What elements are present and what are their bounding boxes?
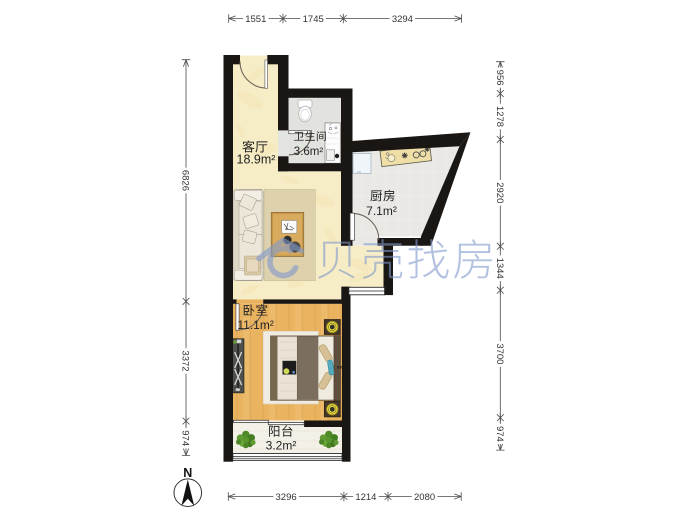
svg-text:2080: 2080 <box>414 492 435 503</box>
svg-text:11.1m²: 11.1m² <box>237 318 273 332</box>
svg-text:3700: 3700 <box>494 343 505 364</box>
svg-text:1344: 1344 <box>494 258 505 279</box>
svg-text:1278: 1278 <box>494 106 505 127</box>
svg-text:7.1m²: 7.1m² <box>366 204 397 218</box>
svg-text:1551: 1551 <box>245 14 266 25</box>
svg-text:1745: 1745 <box>303 14 324 25</box>
svg-text:3.6m²: 3.6m² <box>294 146 324 158</box>
svg-text:6826: 6826 <box>180 170 191 191</box>
svg-text:974: 974 <box>494 426 505 442</box>
svg-text:974: 974 <box>180 430 191 446</box>
svg-text:3294: 3294 <box>392 14 413 25</box>
svg-text:3372: 3372 <box>180 350 191 371</box>
svg-text:956: 956 <box>494 70 505 86</box>
svg-text:3296: 3296 <box>276 492 297 503</box>
svg-text:3.2m²: 3.2m² <box>266 438 297 452</box>
svg-text:1214: 1214 <box>355 492 376 503</box>
svg-text:2920: 2920 <box>494 182 505 203</box>
svg-text:N: N <box>183 466 192 480</box>
svg-text:18.9m²: 18.9m² <box>237 152 276 166</box>
